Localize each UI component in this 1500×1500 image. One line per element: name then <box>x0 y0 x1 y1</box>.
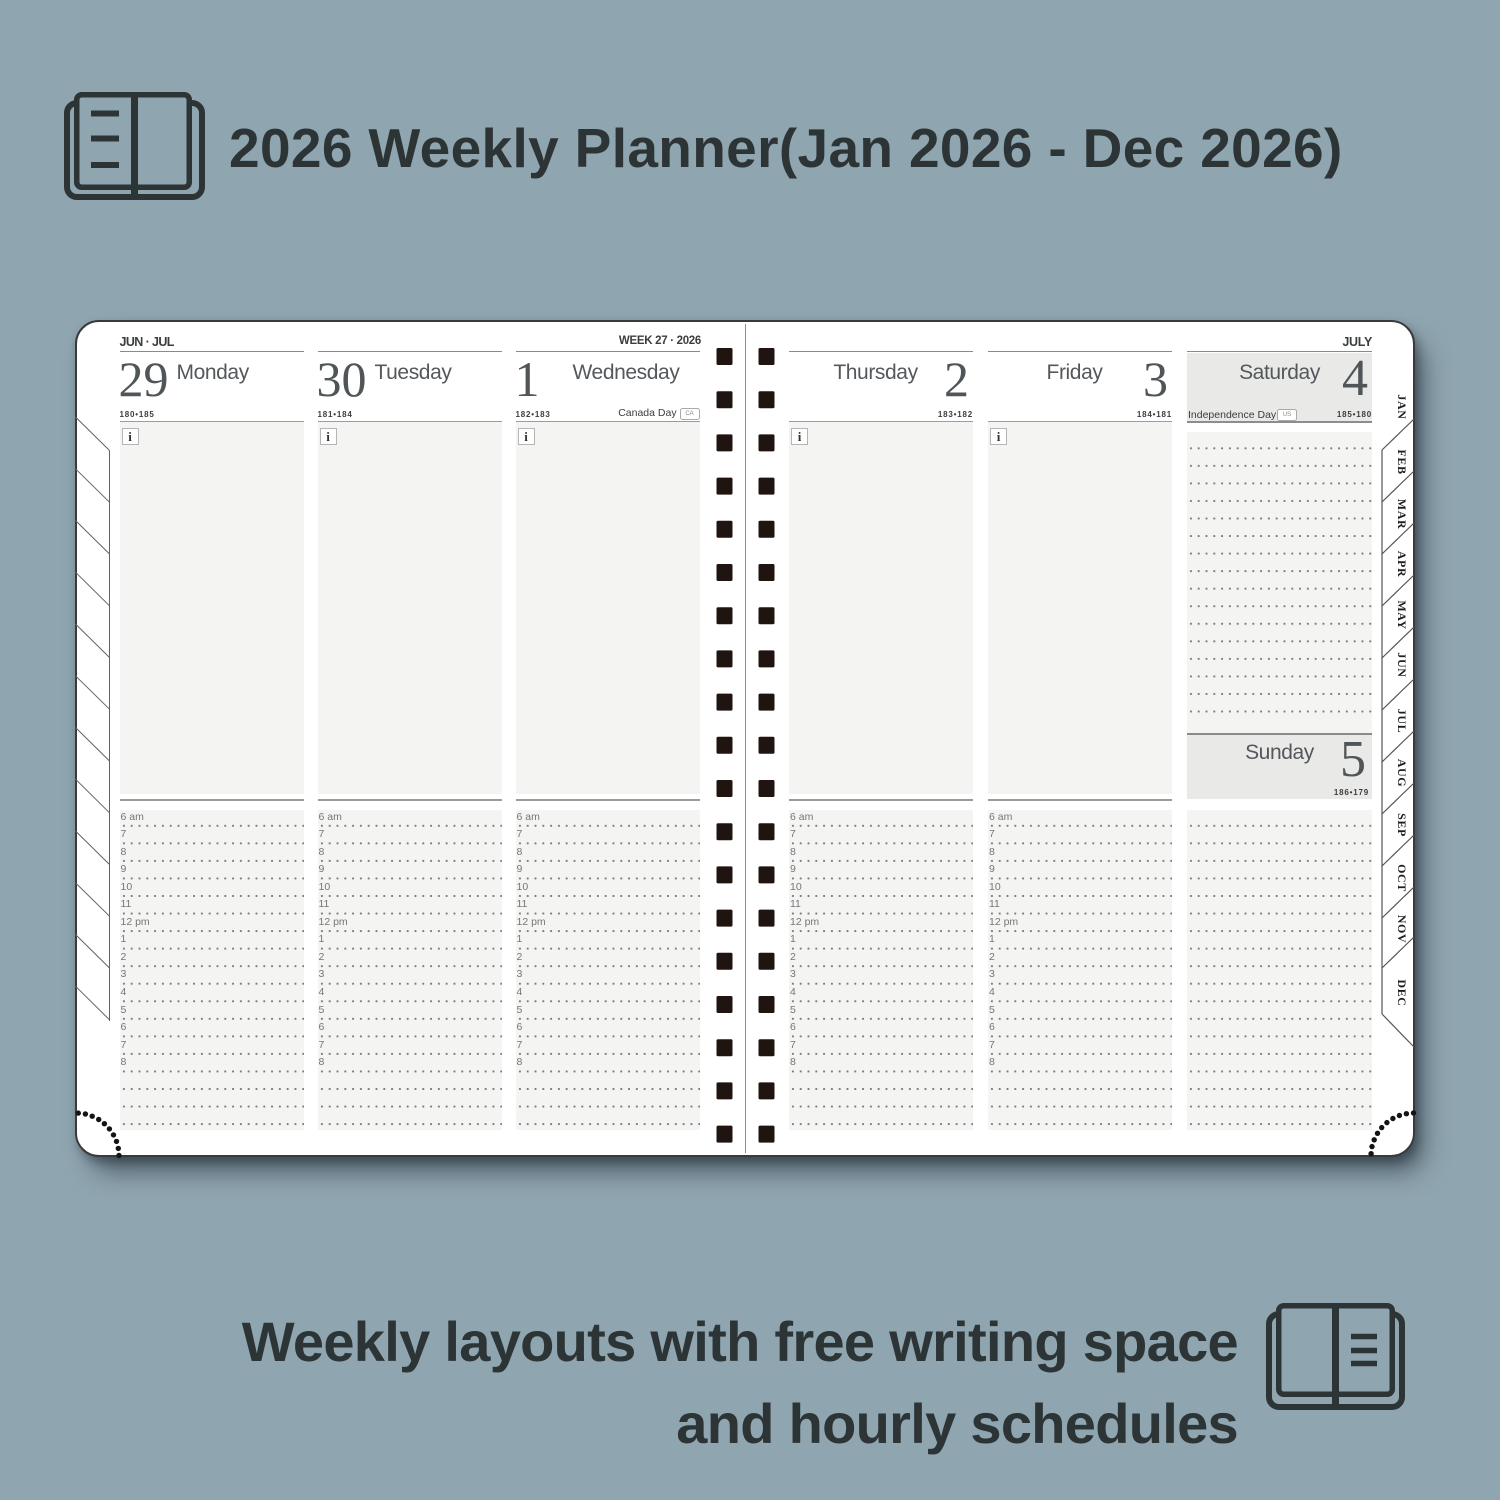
svg-text:JAN: JAN <box>1395 394 1409 419</box>
svg-text:JUN: JUN <box>1395 652 1409 677</box>
svg-text:SEP: SEP <box>1395 813 1409 837</box>
svg-text:DEC: DEC <box>1395 979 1409 1006</box>
svg-text:AUG: AUG <box>1395 759 1409 787</box>
svg-text:JUL: JUL <box>1395 709 1409 733</box>
svg-text:APR: APR <box>1395 551 1409 577</box>
svg-text:NOV: NOV <box>1395 915 1409 943</box>
svg-text:OCT: OCT <box>1395 864 1409 892</box>
svg-text:FEB: FEB <box>1395 449 1409 474</box>
svg-text:MAR: MAR <box>1395 499 1409 529</box>
svg-text:MAY: MAY <box>1395 600 1409 629</box>
